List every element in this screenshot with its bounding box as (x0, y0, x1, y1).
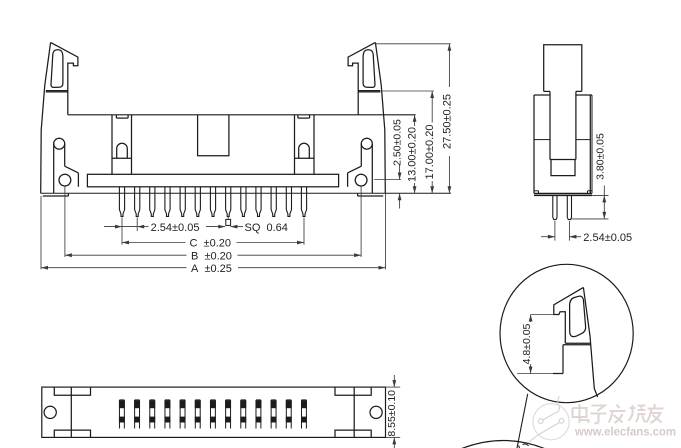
svg-text:A ±0.25: A ±0.25 (191, 263, 232, 275)
svg-text:4.8±0.05: 4.8±0.05 (521, 323, 533, 364)
svg-text:13.00±0.20: 13.00±0.20 (407, 127, 419, 182)
svg-text:B ±0.20: B ±0.20 (191, 250, 232, 262)
svg-text:8.55±0.10: 8.55±0.10 (386, 390, 398, 437)
svg-text:27.50±0.25: 27.50±0.25 (441, 94, 453, 149)
svg-text:2.54±0.05: 2.54±0.05 (151, 222, 200, 234)
svg-text:2.54±0.05: 2.54±0.05 (583, 232, 632, 244)
svg-text:3.80±0.05: 3.80±0.05 (595, 133, 607, 180)
svg-text:SQ 0.64: SQ 0.64 (245, 222, 288, 234)
svg-text:17.00±0.20: 17.00±0.20 (424, 125, 436, 180)
svg-text:www.elecfans.com: www.elecfans.com (574, 425, 676, 439)
svg-text:2.50±0.05: 2.50±0.05 (392, 119, 404, 166)
svg-text:C ±0.20: C ±0.20 (190, 238, 232, 250)
